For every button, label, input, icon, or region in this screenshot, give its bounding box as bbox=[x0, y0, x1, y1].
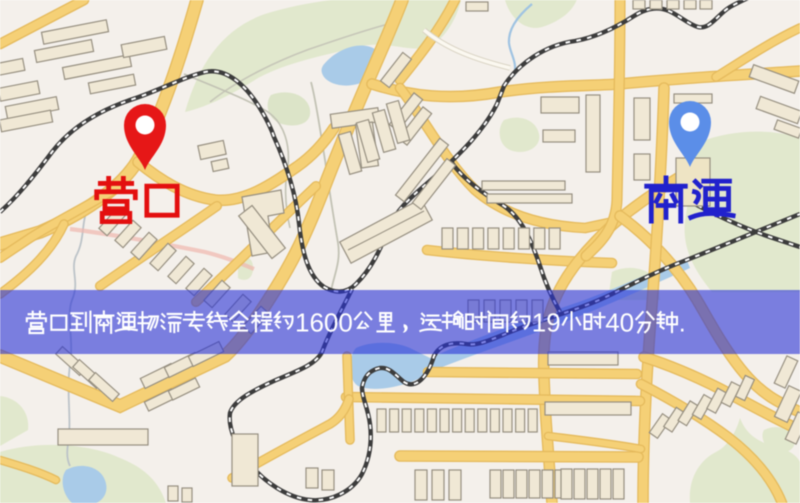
svg-text:19: 19 bbox=[532, 308, 561, 338]
svg-text:1600: 1600 bbox=[295, 308, 353, 338]
svg-text:40: 40 bbox=[605, 308, 634, 338]
svg-text:.: . bbox=[679, 308, 686, 338]
